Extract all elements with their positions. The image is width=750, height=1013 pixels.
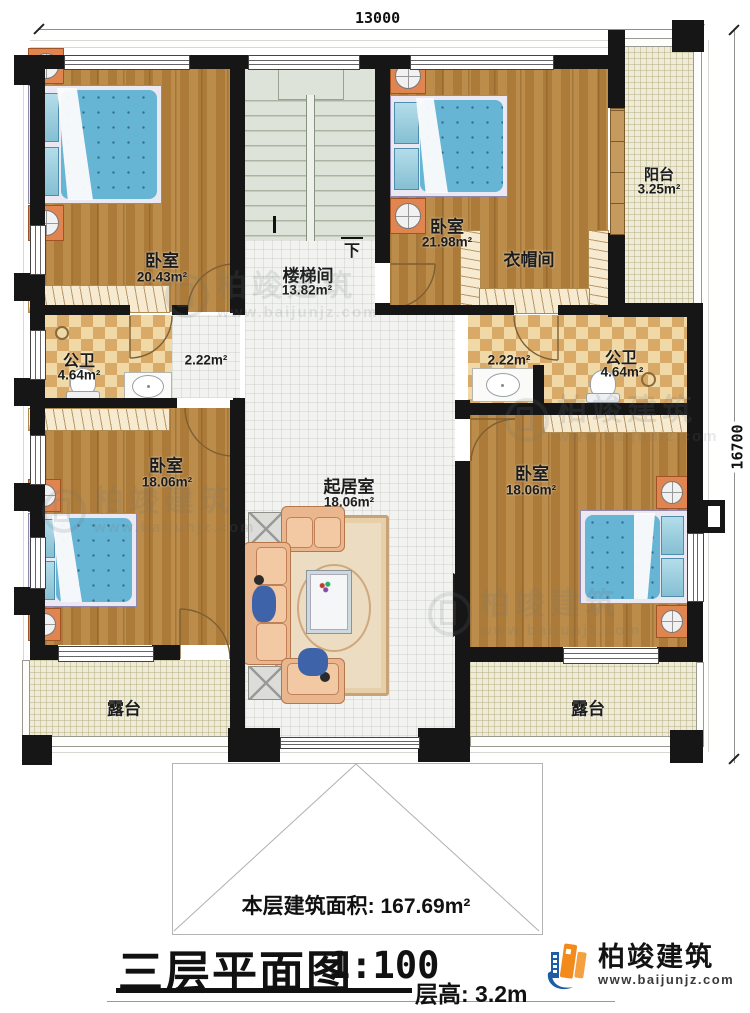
dim-right-label: 16700: [729, 421, 747, 472]
wall: [232, 645, 245, 660]
window: [30, 435, 46, 485]
bedroom-bottom-left-label: 卧室: [149, 452, 183, 477]
wall: [233, 305, 245, 315]
wall: [30, 398, 177, 408]
window: [30, 225, 46, 275]
window: [410, 55, 554, 70]
hall-right-area: 2.22m²: [488, 353, 531, 368]
bedroom-bottom-right-area: 18.06m²: [506, 483, 556, 498]
floor-plan-canvas: 13000 16700: [0, 0, 750, 1013]
cloakroom-label: 衣帽间: [504, 246, 555, 271]
living-room-area: 18.06m²: [324, 495, 374, 510]
wall: [233, 398, 245, 408]
wall: [455, 461, 470, 745]
terrace-right-railing-bottom: [470, 736, 704, 747]
window: [30, 537, 46, 589]
wall: [172, 305, 188, 315]
dim-top-label: 13000: [352, 9, 403, 27]
wall: [608, 233, 625, 305]
stair-down-label: 下: [344, 237, 360, 261]
bedroom-bottom-right-label: 卧室: [515, 460, 549, 485]
wall: [30, 305, 130, 315]
window: [58, 646, 154, 662]
window: [30, 330, 46, 380]
flue-inner: [708, 506, 720, 527]
balcony-sliding-door: [610, 108, 625, 235]
balcony-railing-right: [693, 38, 702, 307]
pier: [14, 587, 45, 615]
wall: [375, 305, 514, 315]
wall: [230, 400, 245, 745]
bath-right-wall-stub: [533, 365, 544, 406]
corner-block: [670, 730, 703, 763]
bedroom-bottom-left-area: 18.06m²: [142, 475, 192, 490]
pier: [14, 273, 45, 301]
terrace-left-label: 露台: [107, 695, 141, 720]
wall: [30, 645, 58, 660]
terrace-left-railing-bottom: [22, 736, 248, 747]
window: [64, 55, 190, 70]
bedroom-top-left-label: 卧室: [145, 247, 179, 272]
terrace-right-label: 露台: [571, 695, 605, 720]
wall: [552, 55, 614, 69]
wall: [455, 647, 563, 662]
window: [563, 648, 659, 664]
wall: [687, 315, 703, 405]
wall: [455, 403, 690, 415]
stairwell-area: 13.82m²: [282, 283, 332, 298]
wall: [558, 305, 608, 315]
bath-left-area: 4.64m²: [58, 368, 101, 383]
wall: [608, 303, 703, 317]
balcony-area: 3.25m²: [638, 182, 681, 197]
pier: [14, 55, 45, 85]
bedroom-top-left-area: 20.43m²: [137, 270, 187, 285]
column: [672, 20, 704, 52]
pier: [228, 728, 280, 762]
bath-right-area: 4.64m²: [601, 365, 644, 380]
pier: [418, 728, 470, 762]
window: [687, 533, 704, 602]
pier: [14, 483, 45, 511]
wall: [152, 645, 180, 660]
corner-block: [22, 735, 52, 765]
window: [248, 55, 360, 70]
terrace-left-railing-side: [22, 660, 30, 746]
sliding-door: [280, 737, 420, 749]
wall: [687, 405, 703, 533]
wall: [657, 647, 703, 662]
wall: [230, 55, 245, 313]
wall: [608, 30, 625, 108]
hall-left-area: 2.22m²: [185, 353, 228, 368]
bedroom-top-right-area: 21.98m²: [422, 235, 472, 250]
wall: [375, 55, 390, 263]
